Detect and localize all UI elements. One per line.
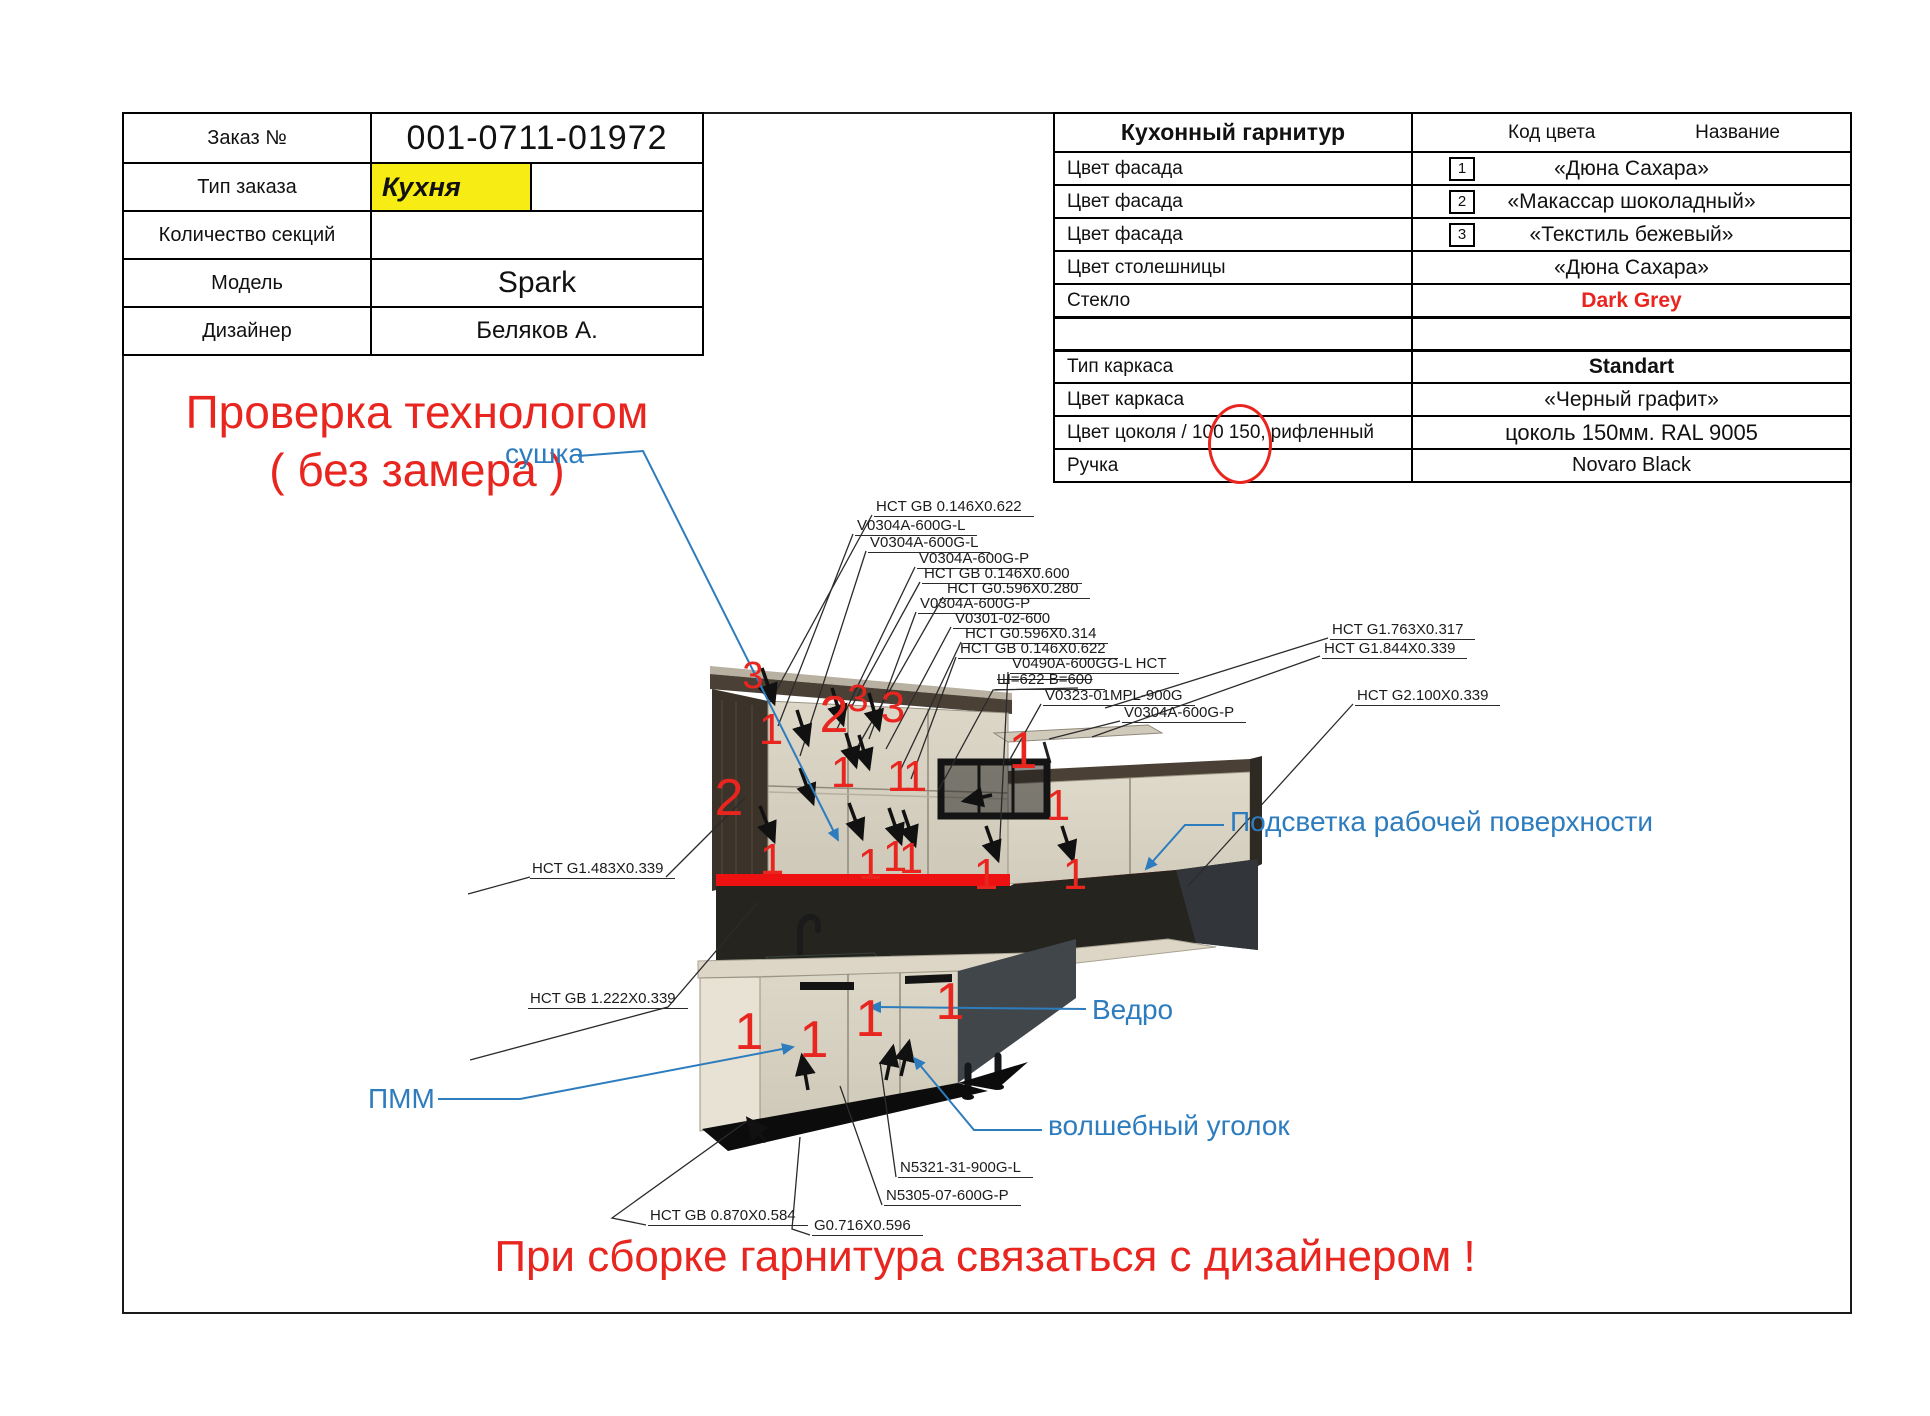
leader-line [1092, 656, 1320, 737]
leader-line [770, 515, 872, 702]
glass-frame-cabinet [941, 762, 1047, 816]
flap-door [994, 725, 1162, 742]
order-sheet-page: Заказ № 001-0711-01972 Тип заказа Кухня … [0, 0, 1930, 1416]
door-gap-dash [800, 982, 854, 990]
led-strip-left [716, 874, 1010, 886]
kitchen-render-svg [0, 0, 1930, 1416]
leader-line [468, 877, 530, 894]
leader-line [1105, 638, 1328, 708]
right-end-panel [1250, 756, 1262, 870]
leader-line [792, 1137, 810, 1235]
left-wood-panel [712, 689, 768, 891]
assembly-warning-note: При сборке гарнитура связаться с дизайне… [122, 1232, 1848, 1282]
kitchen-render [698, 666, 1262, 1151]
